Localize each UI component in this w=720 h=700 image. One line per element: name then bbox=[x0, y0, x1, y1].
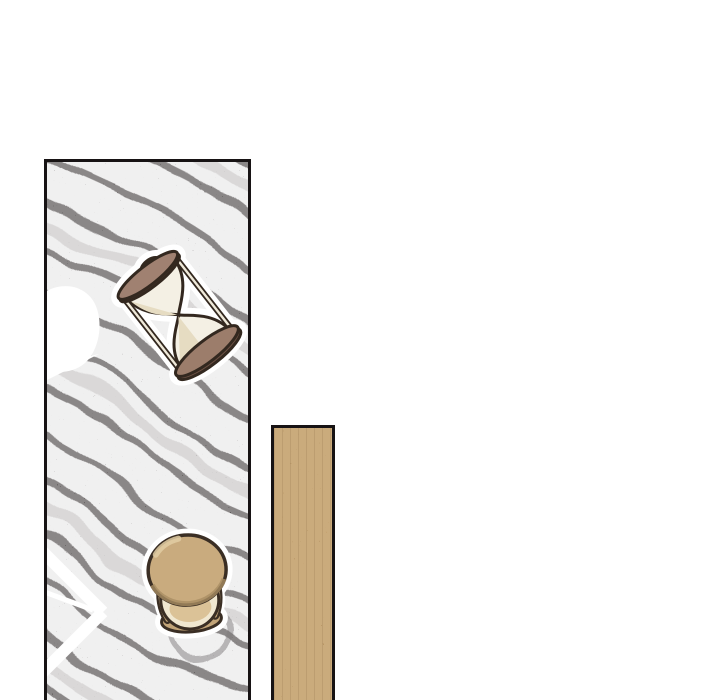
comic-page bbox=[0, 0, 720, 700]
comic-panel-sand bbox=[44, 159, 251, 700]
sand-panel-art bbox=[47, 162, 248, 700]
hourglass-top-icon bbox=[145, 532, 231, 635]
wood-panel-art bbox=[274, 428, 332, 700]
comic-panel-wood bbox=[271, 425, 335, 700]
